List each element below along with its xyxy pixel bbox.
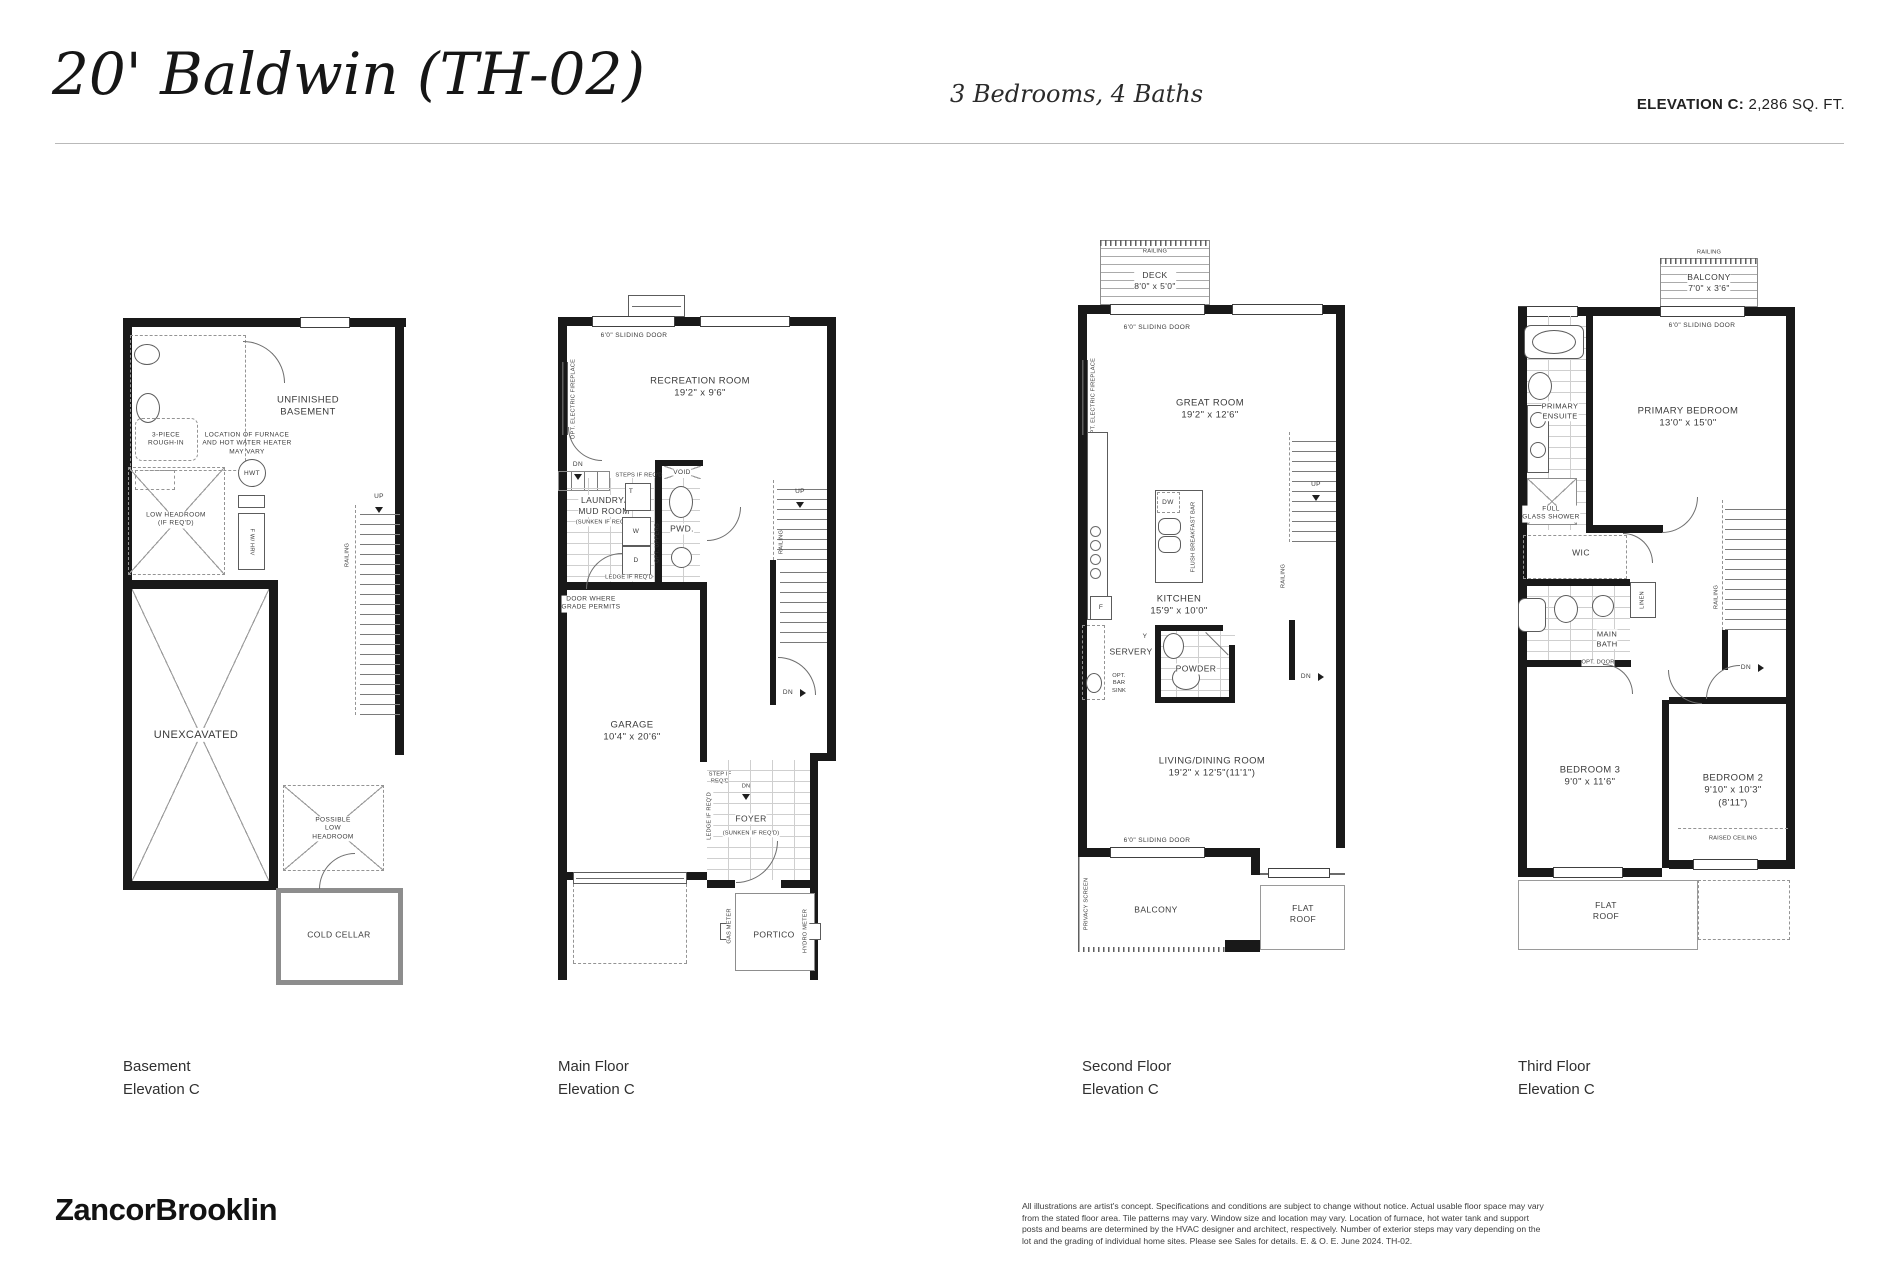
sliding-door-label: 6'0" SLIDING DOOR — [601, 332, 668, 340]
opt-fireplace-label: OPT. ELECTRIC FIREPLACE — [1090, 358, 1097, 438]
railing-label: RAILING — [344, 543, 351, 567]
arrow-icon — [1758, 664, 1764, 672]
bathtub-icon — [1518, 598, 1546, 632]
tub-label: T — [629, 488, 633, 496]
balcony-railing-label: RAILING — [1697, 249, 1721, 256]
dn-label: DN — [783, 689, 793, 697]
garage-label: GARAGE 10'4" x 20'6" — [603, 720, 660, 745]
sink-icon — [1592, 595, 1614, 617]
gas-meter-label: GAS METER — [726, 908, 733, 943]
possible-low-headroom-label: POSSIBLE LOW HEADROOM — [312, 816, 353, 841]
main-bath-label: MAIN BATH — [1596, 629, 1617, 649]
powder-label: POWDER — [1176, 663, 1217, 674]
arrow-icon — [1312, 495, 1320, 501]
stairs-dn — [1725, 500, 1786, 630]
door-arc — [568, 427, 602, 461]
foyer-sunken-label: (SUNKEN IF REQ'D) — [723, 830, 780, 837]
elevation-value: 2,286 SQ. FT. — [1749, 96, 1845, 113]
bedroom3-label: BEDROOM 3 9'0" x 11'6" — [1560, 765, 1621, 790]
void-label: VOID — [673, 469, 691, 477]
sink-icon — [134, 344, 160, 365]
low-headroom-box — [135, 470, 175, 490]
plan-third-floor: RAILING BALCONY 7'0" x 3'6" 6'0" SLIDING… — [1518, 250, 1795, 955]
deck-label: DECK 8'0" x 5'0" — [1134, 270, 1176, 292]
wic-label: WIC — [1572, 547, 1590, 558]
arrow-icon — [800, 689, 806, 697]
toilet-icon — [669, 486, 693, 518]
railing-label: RAILING — [778, 530, 785, 554]
fridge-label: F — [1099, 604, 1103, 612]
elevation-area: ELEVATION C: 2,286 SQ. FT. — [1500, 96, 1845, 113]
up-label: UP — [374, 493, 384, 501]
opt-uppers-label: OPT. UPPERS — [654, 523, 661, 563]
hydro-meter-label: HYDRO METER — [802, 909, 809, 953]
sink-icon — [1158, 536, 1181, 553]
balcony-label: BALCONY 7'0" x 3'6" — [1687, 272, 1730, 294]
sink-icon — [671, 547, 692, 568]
roof-outline — [1698, 880, 1790, 940]
arrow-icon — [1318, 673, 1324, 681]
deck-railing-label: RAILING — [1143, 248, 1167, 255]
plan-basement: 3-PIECE ROUGH-IN LOCATION OF FURNACE AND… — [123, 313, 406, 996]
unfinished-basement-label: UNFINISHED BASEMENT — [277, 395, 339, 420]
sink-icon — [1158, 518, 1181, 535]
sliding-door-label: 6'0" SLIDING DOOR — [1669, 322, 1736, 330]
fireplace-icon — [1082, 360, 1088, 435]
driveway-line — [573, 963, 687, 964]
stairs-dn — [780, 563, 827, 648]
stair-rail — [355, 505, 356, 715]
door-arc — [243, 341, 285, 383]
great-room-label: GREAT ROOM 19'2" x 12'6" — [1176, 398, 1244, 423]
bath-door-arc — [1603, 664, 1633, 694]
arrow-icon — [796, 502, 804, 508]
flush-bar-label: FLUSH BREAKFAST BAR — [1190, 502, 1197, 573]
bedroom2-door-arc — [1706, 665, 1740, 699]
builder-logo: ZancorBrooklin — [55, 1192, 277, 1228]
dw-label: DW — [1162, 499, 1174, 507]
rough-in-label: 3-PIECE ROUGH-IN — [148, 432, 184, 449]
sink-icon — [1530, 442, 1546, 458]
hrv-label: F W/ HRV — [247, 528, 254, 555]
railing-label: RAILING — [1713, 585, 1720, 609]
disclaimer-text: All illustrations are artist's concept. … — [1022, 1201, 1544, 1247]
caption-main-floor: Main Floor Elevation C — [558, 1056, 635, 1101]
caption-basement: Basement Elevation C — [123, 1056, 200, 1101]
page-subtitle: 3 Bedrooms, 4 Baths — [950, 80, 1203, 108]
balcony-label: BALCONY — [1134, 904, 1177, 915]
bedroom2-label: BEDROOM 2 9'10" x 10'3"(8'11") — [1702, 772, 1764, 809]
floorplan-sheet: 20' Baldwin (TH-02) 3 Bedrooms, 4 Baths … — [0, 0, 1900, 1276]
primary-ensuite-label: PRIMARY ENSUITE — [1542, 401, 1579, 421]
raised-ceiling-line — [1678, 828, 1788, 829]
up-label: UP — [795, 488, 805, 496]
furnace-note: LOCATION OF FURNACE AND HOT WATER HEATER… — [202, 431, 292, 456]
foyer-label: FOYER — [735, 813, 766, 824]
plan-second-floor: RAILING DECK 8'0" x 5'0" 6'0" SLIDING DO… — [1078, 240, 1345, 955]
dryer-label: D — [633, 557, 638, 565]
toilet-icon — [1554, 595, 1578, 623]
caption-third-floor: Third Floor Elevation C — [1518, 1056, 1595, 1101]
sliding-door-label: 6'0" SLIDING DOOR — [1124, 324, 1191, 332]
fireplace-icon — [562, 362, 568, 435]
railing-label: RAILING — [1280, 564, 1287, 588]
laundry-label: LAUNDRY/ MUD ROOM — [578, 495, 629, 517]
plan-main-floor: 6'0" SLIDING DOOR OPT. ELECTRIC FIREPLAC… — [558, 295, 836, 995]
living-dining-label: LIVING/DINING ROOM 19'2" x 12'5"(11'1") — [1159, 756, 1265, 781]
flat-roof-label: FLAT ROOF — [1282, 903, 1324, 925]
caption-second-floor: Second Floor Elevation C — [1082, 1056, 1171, 1101]
elevation-label: ELEVATION C: — [1637, 96, 1744, 113]
stair-arrow-icon — [375, 507, 383, 513]
privacy-screen-label: PRIVACY SCREEN — [1083, 878, 1090, 931]
servery-label: SERVERY — [1109, 646, 1152, 657]
portico-label: PORTICO — [753, 929, 794, 940]
up-label: UP — [1311, 481, 1321, 489]
equipment-box — [238, 495, 265, 508]
primary-bedroom-label: PRIMARY BEDROOM 13'0" x 15'0" — [1638, 406, 1739, 431]
header-divider — [55, 143, 1844, 144]
page-title: 20' Baldwin (TH-02) — [52, 40, 645, 108]
linen-label: LINEN — [1639, 591, 1646, 609]
full-glass-shower-label: FULL GLASS SHOWER — [1522, 506, 1580, 523]
sliding-door-label-2: 6'0" SLIDING DOOR — [1124, 837, 1191, 845]
dn-label: DN — [1301, 673, 1311, 681]
bar-sink-icon — [1086, 673, 1102, 693]
ledge-label-2: LEDGE IF REQ'D — [706, 792, 713, 840]
flat-roof-label: FLAT ROOF — [1593, 900, 1619, 922]
sink-icon — [1163, 633, 1184, 659]
unexcavated-label: UNEXCAVATED — [154, 728, 238, 742]
opt-bar-sink-label: OPT. BAR SINK — [1112, 673, 1126, 695]
pwd-label: PWD. — [670, 523, 694, 534]
primary-door-arc — [1662, 497, 1698, 533]
cold-cellar-label: COLD CELLAR — [307, 929, 370, 940]
recreation-room-label: RECREATION ROOM 19'2" x 9'6" — [650, 376, 750, 401]
washer-label: W — [633, 528, 640, 536]
low-headroom-label: LOW HEADROOM (IF REQ'D) — [146, 512, 206, 529]
pwd-door-arc — [707, 507, 741, 541]
kitchen-label: KITCHEN 15'9" x 10'0" — [1150, 594, 1207, 619]
hydro-meter-icon — [808, 923, 821, 940]
toilet-icon — [1528, 372, 1552, 400]
hwt-label: HWT — [244, 470, 260, 478]
wic-door-arc — [1623, 533, 1653, 563]
dn-label: DN — [1741, 664, 1751, 672]
dn-label: DN — [573, 461, 583, 469]
stairs — [360, 505, 400, 715]
door-grade-label: DOOR WHERE GRADE PERMITS — [561, 596, 620, 613]
raised-ceiling-label: RAISED CEILING — [1709, 835, 1757, 842]
servery-y-label: Y — [1143, 633, 1148, 641]
